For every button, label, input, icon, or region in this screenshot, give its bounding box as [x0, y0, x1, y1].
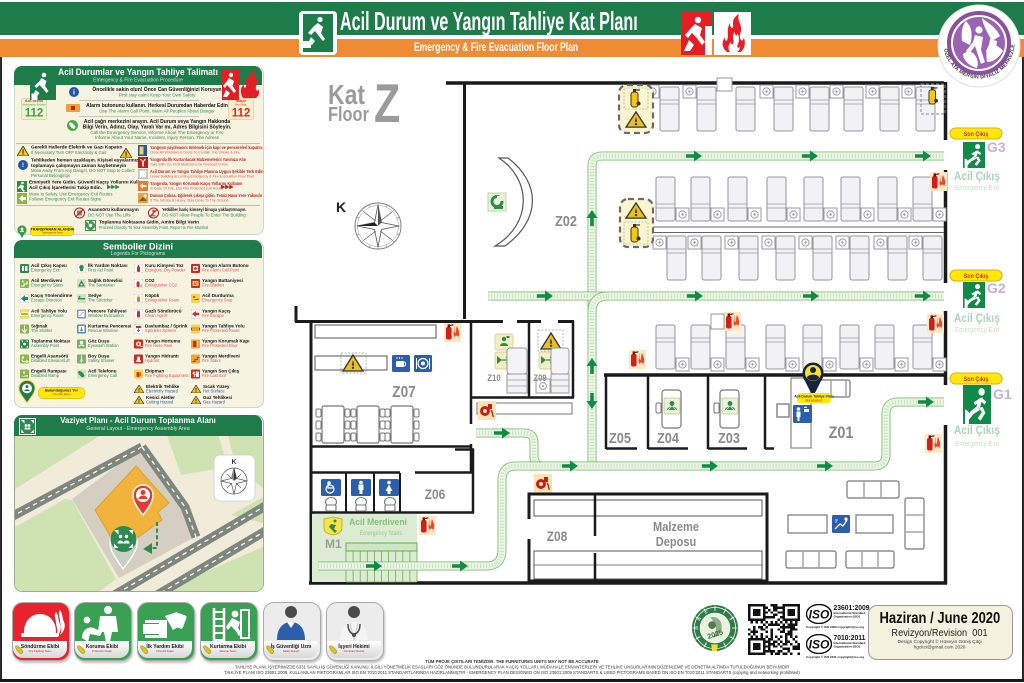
svg-text:M1: M1 [325, 537, 342, 551]
svg-text:Z08: Z08 [547, 528, 567, 544]
svg-text:G1: G1 [993, 386, 1012, 402]
svg-text:Son Çıkış: Son Çıkış [964, 272, 989, 280]
svg-text:ISO: ISO [809, 608, 830, 622]
svg-text:Acil Merdiveni: Acil Merdiveni [349, 517, 407, 528]
svg-text:Z10: Z10 [487, 372, 500, 383]
svg-text:Son Çıkış: Son Çıkış [964, 375, 989, 383]
svg-text:Buradasınız: Buradasınız [805, 399, 822, 403]
svg-text:Z04: Z04 [657, 429, 679, 446]
svg-text:10: 10 [695, 626, 699, 630]
svg-text:Son Çıkış: Son Çıkış [964, 130, 989, 138]
svg-text:Z03: Z03 [718, 429, 740, 446]
svg-text:Z05: Z05 [609, 429, 631, 446]
svg-text:Floor: Floor [328, 102, 369, 125]
svg-text:Acil Çıkış: Acil Çıkış [954, 312, 1000, 325]
svg-text:Z06: Z06 [425, 486, 445, 502]
svg-text:1: 1 [714, 608, 716, 612]
svg-text:Emergency Exit: Emergency Exit [955, 327, 999, 334]
svg-text:Emergency Exit: Emergency Exit [955, 185, 999, 192]
svg-text:Deposu: Deposu [656, 534, 696, 549]
svg-text:ISO: ISO [809, 638, 830, 652]
svg-text:Z02: Z02 [555, 212, 577, 229]
svg-text:Acil Çıkış: Acil Çıkış [954, 170, 1000, 183]
svg-text:Acil Çıkış: Acil Çıkış [954, 424, 1000, 437]
svg-text:K: K [336, 199, 346, 215]
svg-text:Emergency Exit: Emergency Exit [955, 441, 999, 448]
svg-text:Malzeme: Malzeme [653, 519, 699, 534]
svg-text:G2: G2 [987, 280, 1006, 296]
svg-text:Emergency Stairs: Emergency Stairs [360, 531, 403, 537]
svg-text:Z: Z [374, 73, 400, 134]
svg-text:Z09: Z09 [533, 372, 546, 383]
svg-text:Z01: Z01 [829, 424, 854, 442]
svg-text:Z07: Z07 [392, 384, 415, 401]
svg-text:G3: G3 [987, 139, 1006, 155]
